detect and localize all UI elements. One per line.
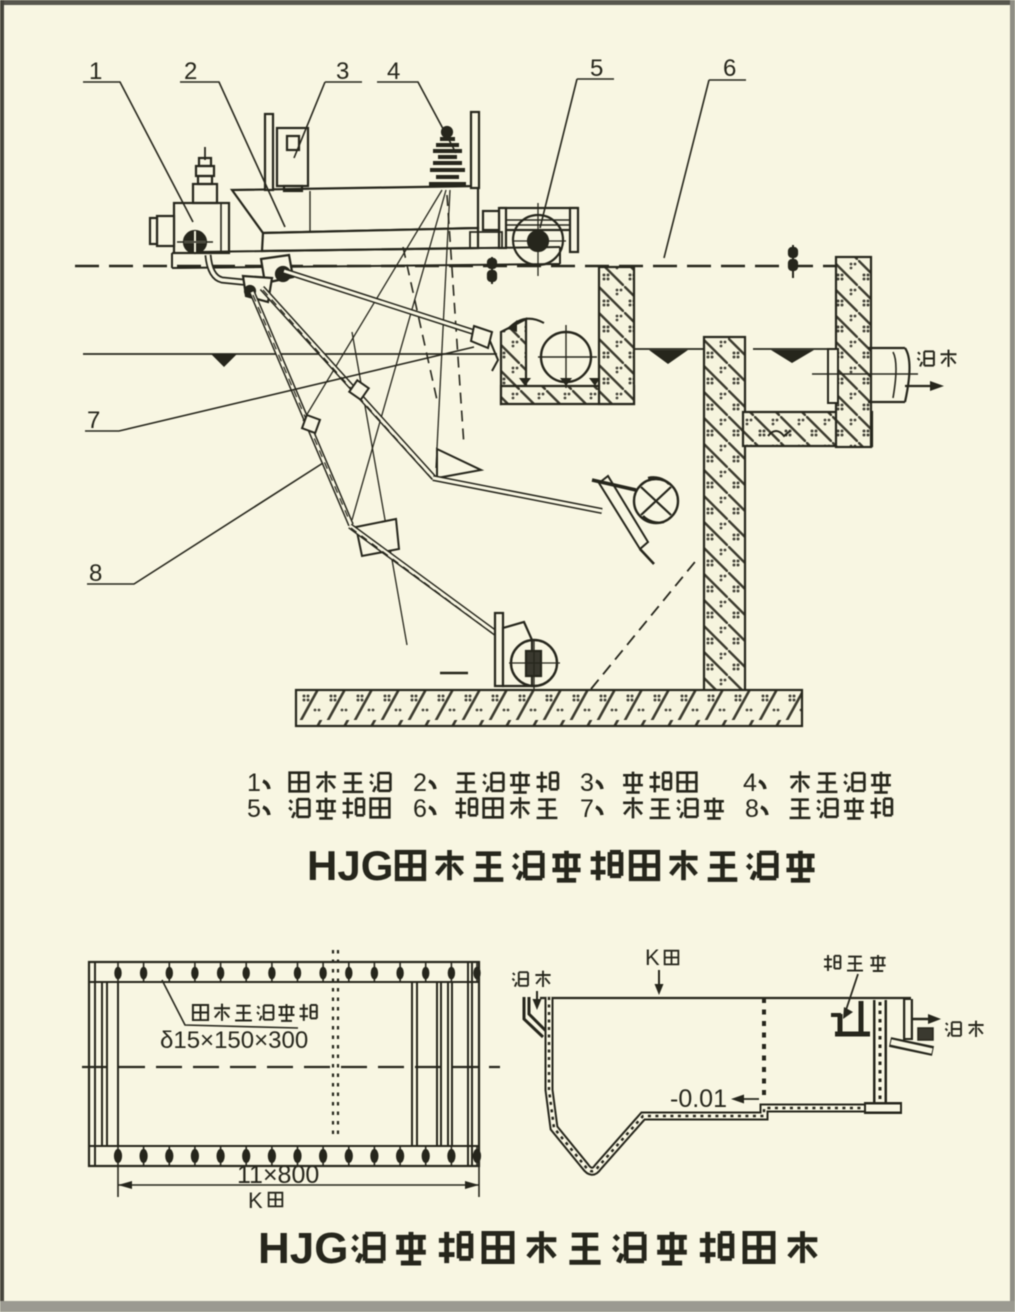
svg-text:1: 1 bbox=[89, 58, 102, 85]
svg-text:8: 8 bbox=[745, 795, 759, 823]
svg-text:-0.01: -0.01 bbox=[670, 1085, 727, 1113]
svg-text:5: 5 bbox=[247, 795, 261, 823]
svg-text:2: 2 bbox=[184, 58, 197, 85]
svg-text:5: 5 bbox=[590, 55, 603, 82]
svg-text:δ15×150×300: δ15×150×300 bbox=[160, 1027, 308, 1054]
svg-text:K: K bbox=[248, 1188, 263, 1213]
svg-text:K: K bbox=[645, 945, 660, 970]
svg-text:1: 1 bbox=[247, 769, 261, 797]
svg-text:6: 6 bbox=[723, 55, 736, 82]
svg-text:2: 2 bbox=[413, 769, 427, 797]
svg-text:3: 3 bbox=[336, 58, 349, 85]
svg-text:HJG: HJG bbox=[307, 842, 393, 889]
svg-text:4: 4 bbox=[387, 58, 400, 85]
svg-text:HJG: HJG bbox=[258, 1224, 348, 1273]
svg-text:4: 4 bbox=[743, 769, 757, 797]
svg-text:6: 6 bbox=[413, 795, 427, 823]
svg-text:7: 7 bbox=[87, 407, 100, 434]
svg-text:7: 7 bbox=[580, 795, 594, 823]
svg-text:3: 3 bbox=[580, 769, 594, 797]
svg-text:8: 8 bbox=[89, 560, 102, 587]
